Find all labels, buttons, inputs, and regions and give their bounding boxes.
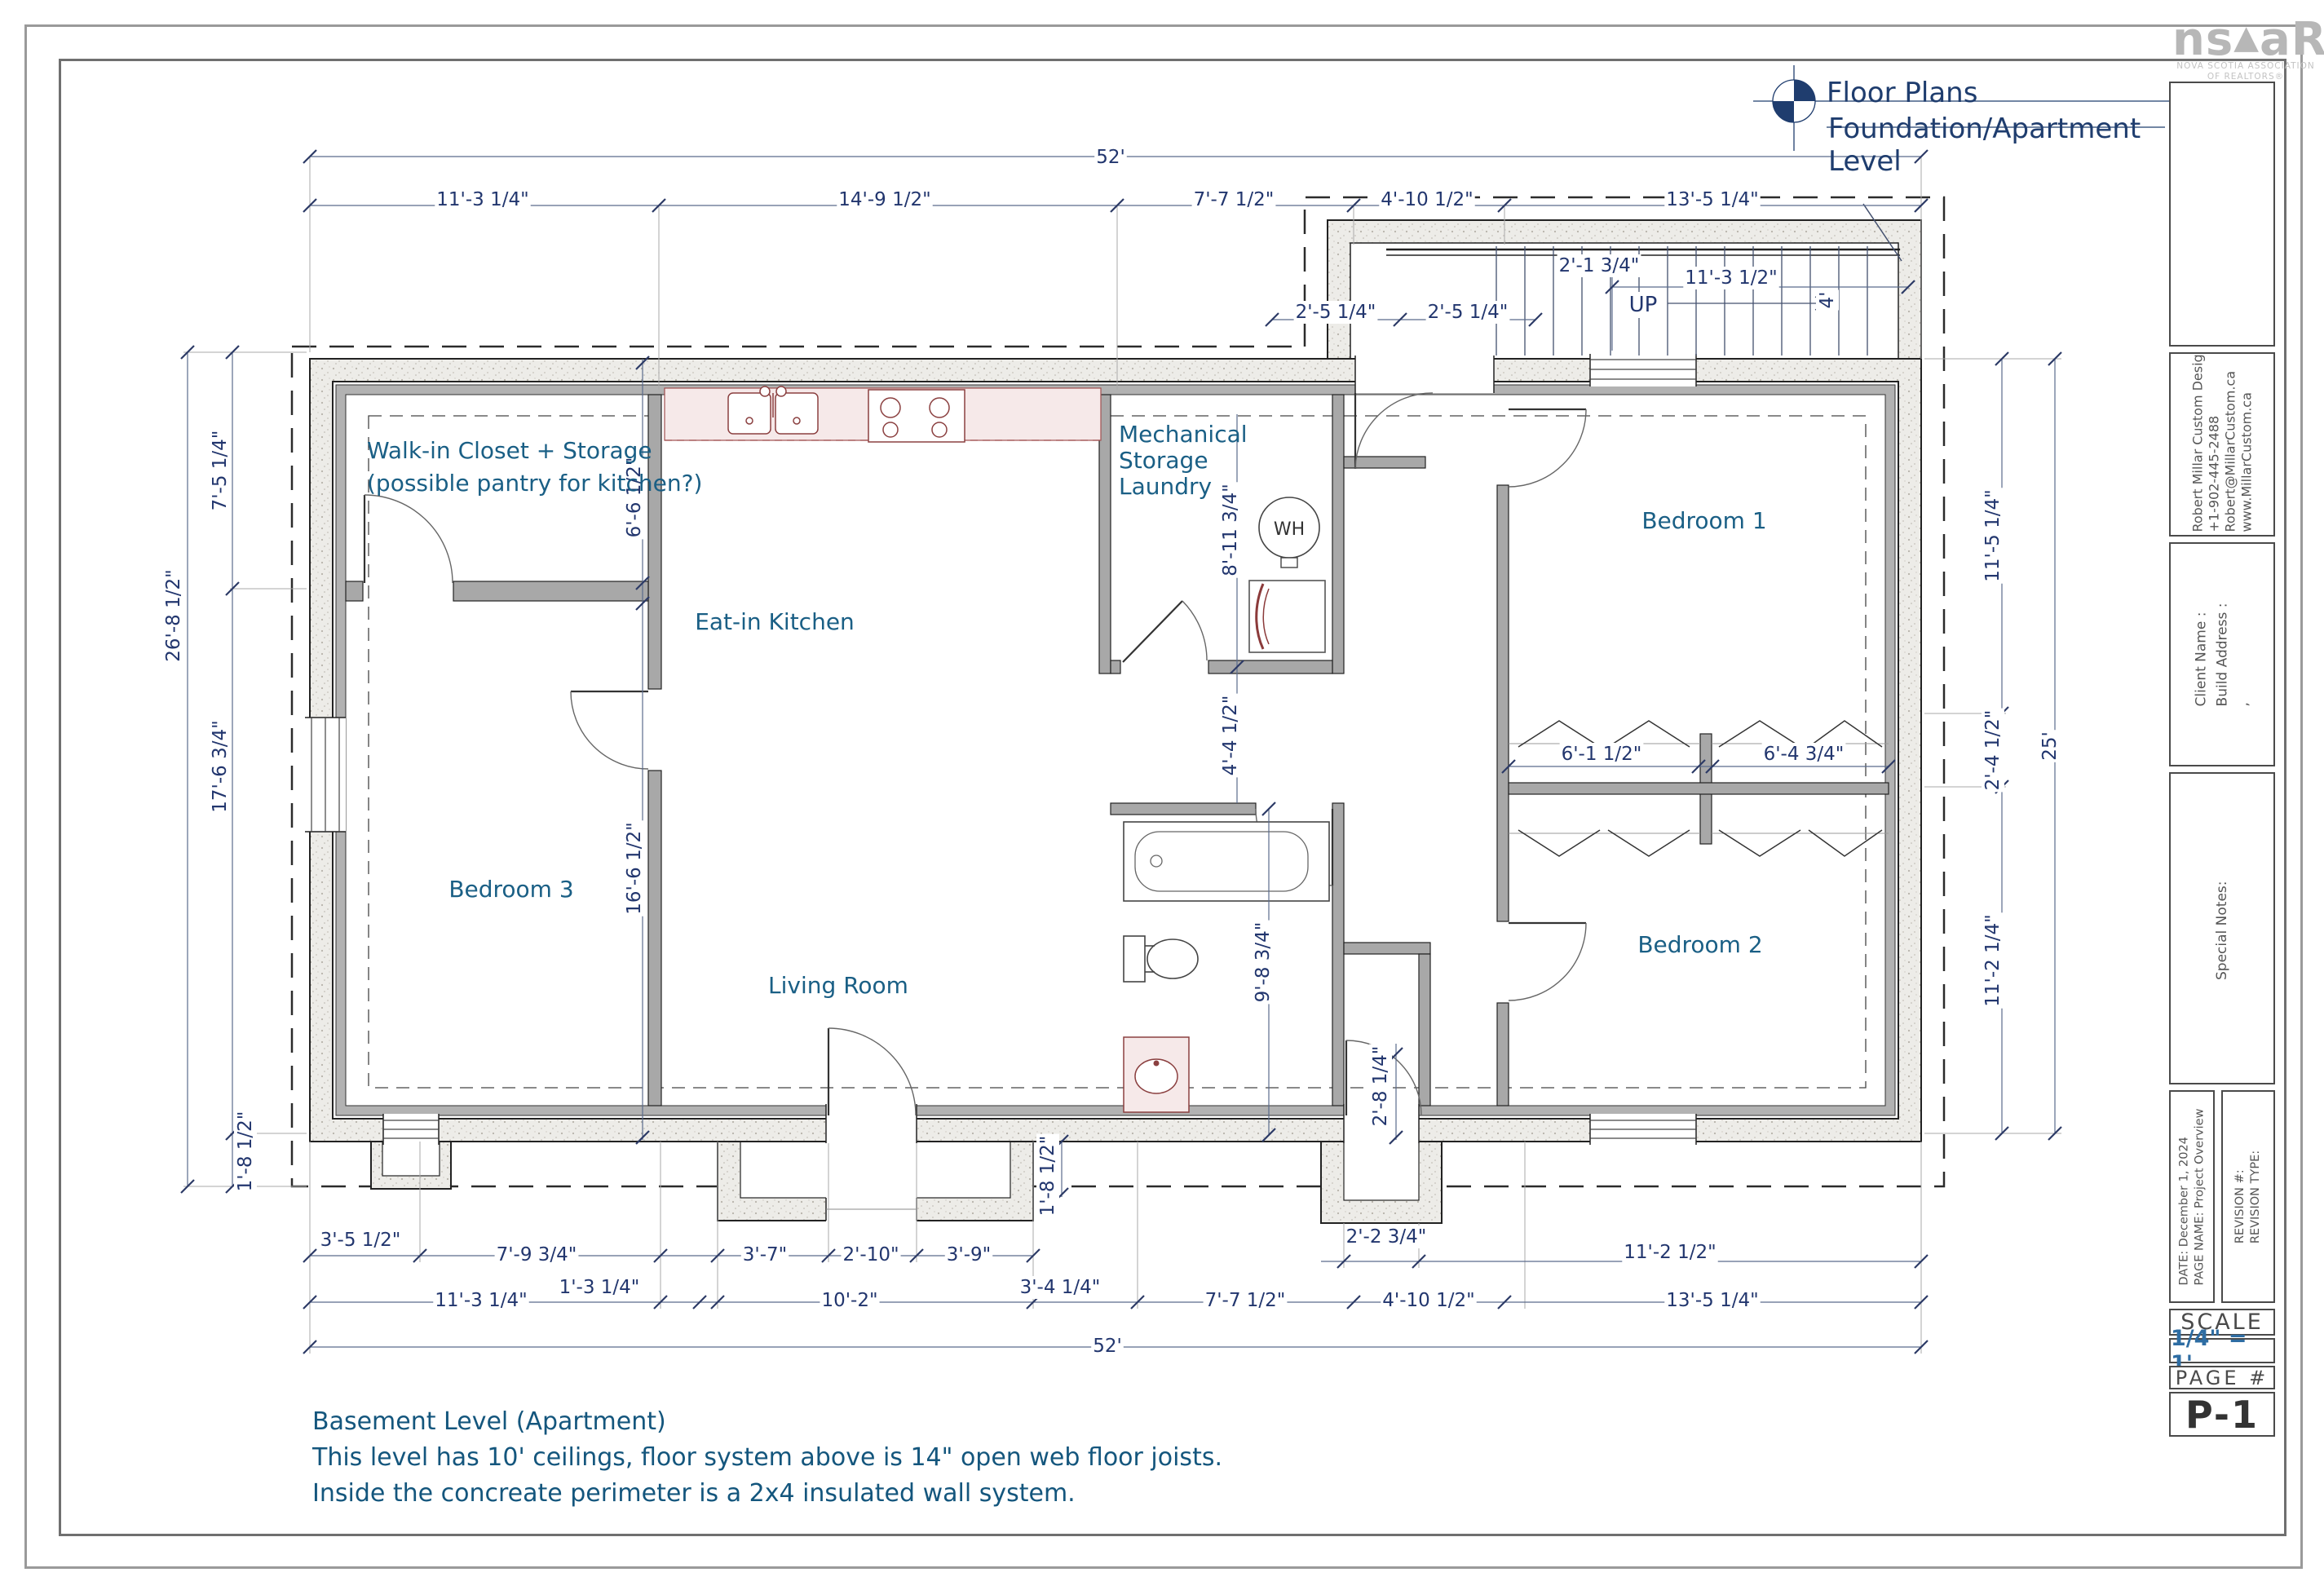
dim-label: 2'-2 3/4" (1346, 1226, 1427, 1248)
room-label: Walk-in Closet + Storage (367, 437, 652, 464)
special-notes-label: Special Notes: (2214, 877, 2230, 980)
kitchen-counter (665, 386, 1101, 442)
dim-label: 2'-1 3/4" (1559, 255, 1640, 276)
room-label: Living Room (768, 972, 908, 999)
dim-label: 11'-2 1/4" (1982, 914, 2004, 1006)
provider-name: Robert Millar Custom Designs (2189, 357, 2206, 532)
room-label: Laundry (1119, 473, 1212, 500)
date-label: DATE: December 1, 2024 (2176, 1108, 2192, 1285)
room-label: Mechanical (1119, 421, 1248, 448)
dim-label: 13'-5 1/4" (1666, 189, 1758, 210)
sidebar-revision-box: REVISION #: REVISION TYPE: (2221, 1090, 2275, 1303)
client-address-value: , (2233, 603, 2254, 706)
revision-number-label: REVISION #: (2233, 1150, 2248, 1243)
vanity-sink-icon (1124, 1037, 1189, 1112)
dim-label: 2'-8 1/4" (1370, 1046, 1391, 1127)
stair-up-label: UP (1629, 293, 1658, 317)
nsar-logo: ns▲aR NOVA SCOTIA ASSOCIATION OF REALTOR… (2172, 16, 2319, 82)
dim-label: 8'-11 3/4" (1220, 484, 1241, 576)
notes-line-1: Basement Level (Apartment) (312, 1404, 1222, 1440)
dim-label: 3'-7" (743, 1244, 787, 1265)
dim-label: 11'-2 1/2" (1624, 1242, 1716, 1263)
sheet-title: Floor Plans (1827, 77, 1977, 109)
dim-label: 11'-3 1/2" (1685, 267, 1777, 289)
nsar-logo-icon: ns▲aR (2172, 16, 2319, 61)
sidebar-date-box: DATE: December 1, 2024 PAGE NAME: Projec… (2169, 1090, 2215, 1303)
dim-label: 7'-9 3/4" (497, 1244, 577, 1265)
toilet-icon (1124, 936, 1198, 982)
dim-label: 25' (2039, 731, 2061, 761)
title-block: Floor Plans Foundation/Apartment Level (1753, 65, 2177, 155)
dim-label: 1'-3 1/4" (559, 1277, 640, 1298)
revision-type-label: REVISION TYPE: (2248, 1150, 2264, 1243)
dim-label: 52' (1093, 1336, 1122, 1357)
sidebar-provider-box: Robert Millar Custom Designs +1-902-445-… (2169, 352, 2275, 537)
dim-label: 3'-9" (947, 1244, 991, 1265)
room-label: Eat-in Kitchen (695, 608, 855, 635)
dim-label: 11'-3 1/4" (435, 1290, 527, 1311)
dim-label: 17'-6 3/4" (210, 720, 231, 812)
dim-label: 14'-9 1/2" (838, 189, 930, 210)
stair-opening (1355, 356, 1494, 393)
stove-icon (868, 390, 965, 442)
room-label: Storage (1119, 447, 1208, 474)
room-label: Bedroom 3 (448, 876, 573, 903)
general-notes: Basement Level (Apartment) This level ha… (312, 1404, 1222, 1512)
room-label: Bedroom 2 (1637, 931, 1762, 958)
sidebar-stamp-box (2169, 82, 2275, 347)
page-number-label: PAGE # (2169, 1366, 2275, 1389)
notes-line-3: Inside the concreate perimeter is a 2x4 … (312, 1476, 1222, 1512)
dim-label: 1'-8 1/2" (1037, 1136, 1058, 1217)
page-name-label: PAGE NAME: Project Overview (2192, 1108, 2207, 1285)
dim-label: 4'-4 1/2" (1220, 696, 1241, 776)
interior-walls (346, 395, 1889, 1106)
dim-label: 3'-4 1/4" (1020, 1277, 1101, 1298)
drawing-sheet: 52'11'-3 1/4"14'-9 1/2"7'-7 1/2"4'-10 1/… (0, 0, 2324, 1590)
client-name-label: Client Name : (2190, 603, 2211, 706)
nsar-logo-sub1: NOVA SCOTIA ASSOCIATION (2172, 61, 2319, 72)
dim-label: 13'-5 1/4" (1666, 1290, 1758, 1311)
floor-plan-drawing: 52'11'-3 1/4"14'-9 1/2"7'-7 1/2"4'-10 1/… (0, 0, 2324, 1590)
provider-email: Robert@MillarCustom.ca (2222, 357, 2238, 532)
dim-label: 26'-8 1/2" (163, 569, 184, 661)
dim-label: 11'-3 1/4" (436, 189, 528, 210)
provider-phone: +1-902-445-2488 (2206, 357, 2222, 532)
room-label: (possible pantry for kitchen?) (367, 470, 702, 497)
provider-website: www.MillarCustom.ca (2238, 357, 2255, 532)
dim-label: 11'-5 1/4" (1982, 489, 2004, 581)
page-number-value: P-1 (2169, 1392, 2275, 1437)
dim-label: 4'-10 1/2" (1381, 189, 1473, 210)
scale-value: 1/4" = 1' (2169, 1338, 2275, 1363)
sidebar-special-notes-box: Special Notes: (2169, 772, 2275, 1084)
dim-label: 1'-8 1/2" (235, 1111, 256, 1192)
dim-label: 4' (1817, 292, 1838, 309)
dim-label: 9'-8 3/4" (1253, 922, 1274, 1003)
notes-line-2: This level has 10' ceilings, floor syste… (312, 1440, 1222, 1476)
dim-label: 4'-10 1/2" (1382, 1290, 1474, 1311)
dim-label: 10'-2" (821, 1290, 877, 1311)
sidebar-client-box: Client Name : Build Address : , (2169, 542, 2275, 766)
dim-label: 2'-5 1/4" (1428, 302, 1509, 323)
dim-label: 7'-5 1/4" (210, 431, 231, 511)
room-label: Bedroom 1 (1641, 507, 1766, 534)
bathtub-icon (1124, 822, 1329, 901)
water-heater-label: WH (1274, 519, 1305, 540)
washer-icon (1249, 581, 1325, 652)
room-labels: Walk-in Closet + Storage(possible pantry… (367, 421, 1767, 999)
entry-wells (371, 1140, 1442, 1223)
dim-label: 6'-4 3/4" (1764, 744, 1845, 765)
dim-label: 6'-1 1/2" (1562, 744, 1642, 765)
dim-label: 2'-4 1/2" (1982, 710, 2004, 791)
dim-label: 7'-7 1/2" (1194, 189, 1275, 210)
dim-label: 2'-10" (842, 1244, 899, 1265)
door-swings (365, 393, 1586, 1115)
dim-label: 52' (1096, 147, 1125, 168)
build-address-label: Build Address : (2211, 603, 2233, 706)
sheet-subtitle: Foundation/Apartment Level (1828, 113, 2177, 178)
bathroom-fixtures (1124, 822, 1329, 1112)
dim-label: 2'-5 1/4" (1296, 302, 1376, 323)
dim-label: 16'-6 1/2" (624, 822, 645, 914)
dim-label: 3'-5 1/2" (320, 1230, 401, 1251)
dim-label: 7'-7 1/2" (1205, 1290, 1286, 1311)
